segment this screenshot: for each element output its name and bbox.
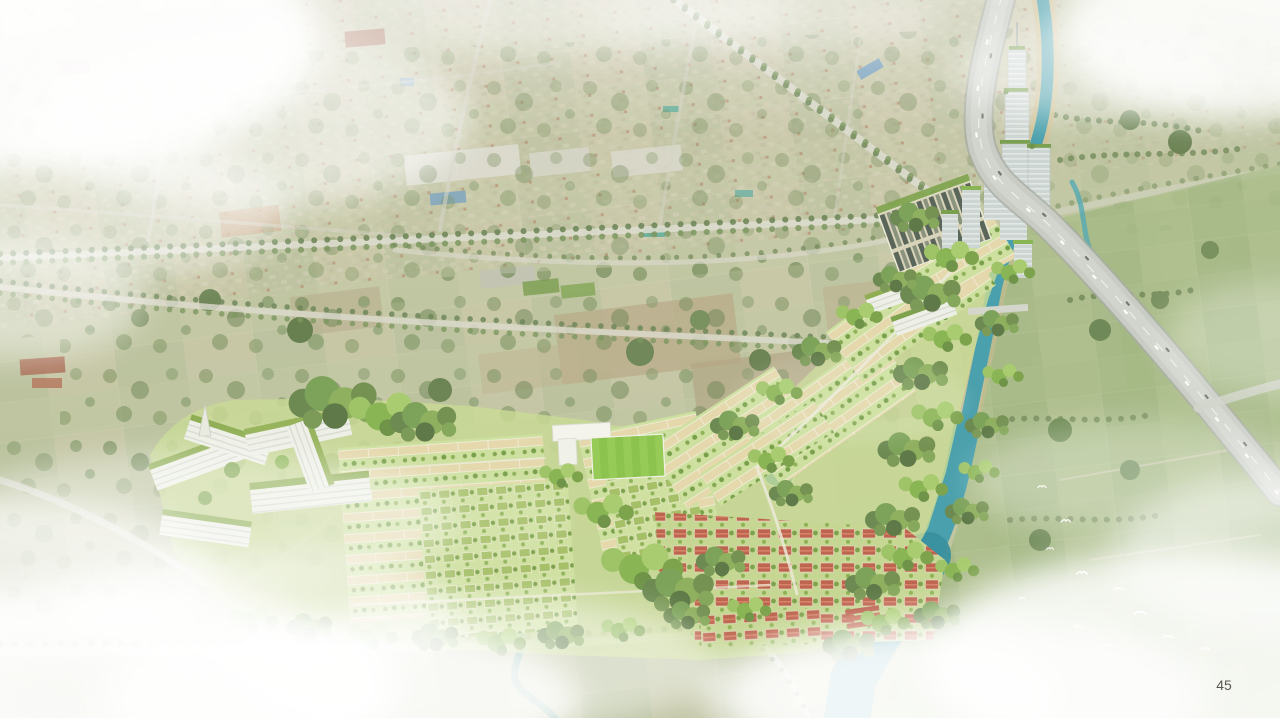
vignette xyxy=(0,0,1280,718)
page-number: 45 xyxy=(1216,677,1232,693)
masterplan-rendering-slide: 45 xyxy=(0,0,1280,718)
aerial-rendering: 45 xyxy=(0,0,1280,718)
